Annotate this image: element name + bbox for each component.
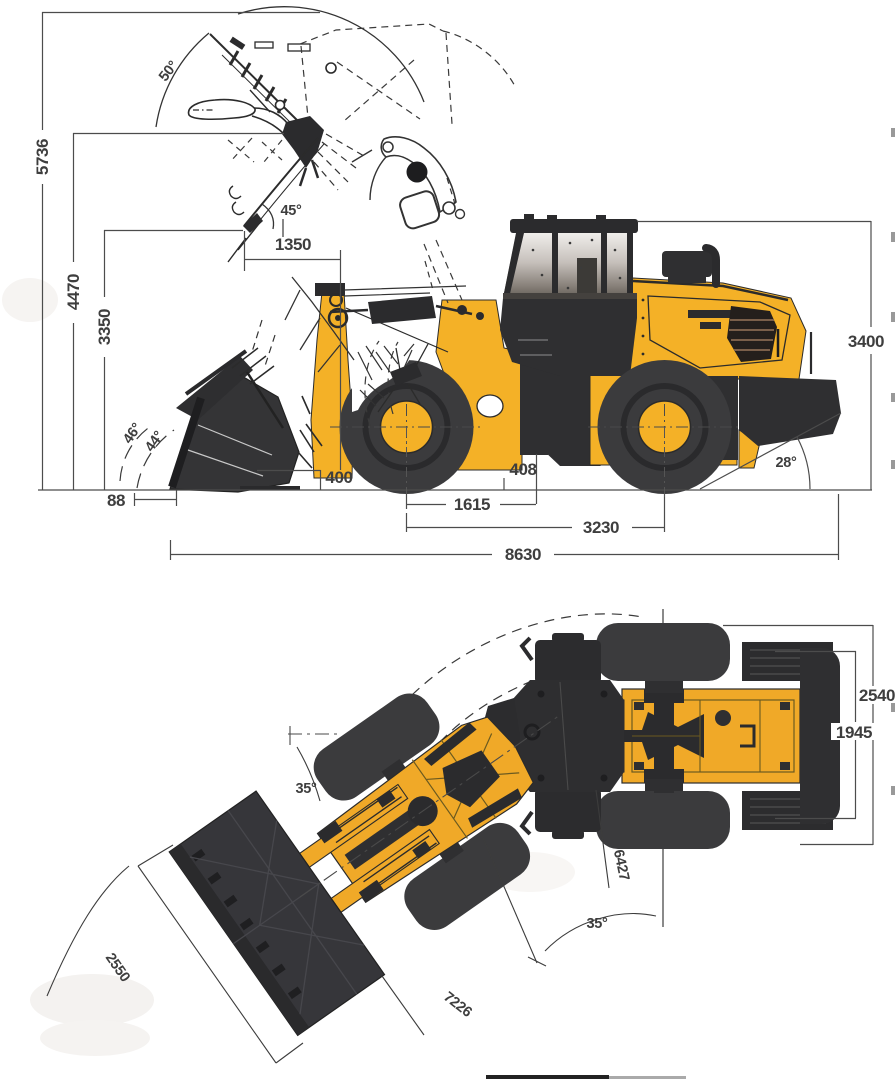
svg-text:28°: 28°: [775, 455, 797, 471]
svg-text:400: 400: [325, 468, 352, 487]
svg-text:408: 408: [509, 460, 536, 479]
svg-text:1945: 1945: [836, 723, 872, 742]
svg-text:2540: 2540: [859, 686, 895, 705]
svg-text:3350: 3350: [95, 309, 114, 345]
svg-text:3400: 3400: [848, 332, 884, 351]
svg-text:35°: 35°: [586, 916, 608, 932]
svg-text:5736: 5736: [33, 139, 52, 175]
svg-text:1350: 1350: [275, 235, 311, 254]
svg-text:88: 88: [107, 491, 125, 510]
svg-text:4470: 4470: [64, 274, 83, 310]
svg-text:8630: 8630: [505, 545, 541, 564]
svg-text:3230: 3230: [583, 518, 619, 537]
svg-text:1615: 1615: [454, 495, 490, 514]
svg-text:45°: 45°: [280, 203, 302, 219]
svg-text:35°: 35°: [295, 781, 317, 797]
